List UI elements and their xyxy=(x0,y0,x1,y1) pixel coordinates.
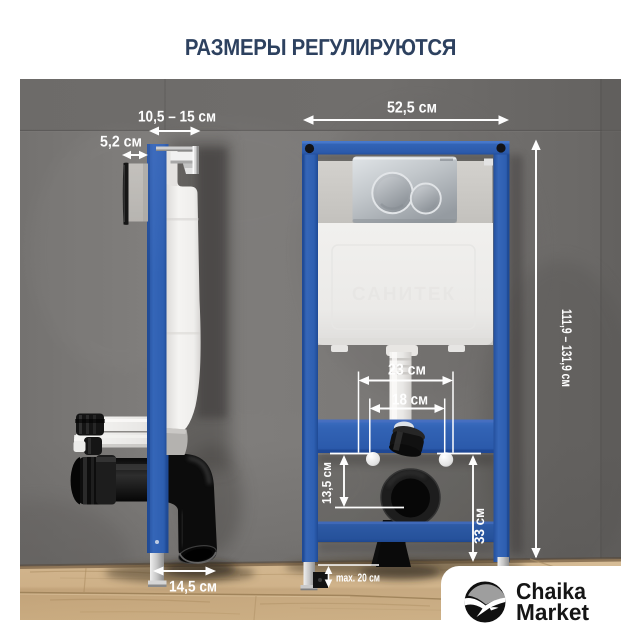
svg-text:52,5 см: 52,5 см xyxy=(387,100,437,117)
svg-text:10,5 – 15 см: 10,5 – 15 см xyxy=(138,109,216,126)
svg-text:РАЗМЕРЫ РЕГУЛИРУЮТСЯ: РАЗМЕРЫ РЕГУЛИРУЮТСЯ xyxy=(185,34,456,60)
svg-text:18 см: 18 см xyxy=(392,392,428,409)
svg-text:5,2 см: 5,2 см xyxy=(100,134,142,151)
svg-text:23 см: 23 см xyxy=(388,362,426,379)
svg-text:111,9 – 131,9 см: 111,9 – 131,9 см xyxy=(559,309,575,387)
svg-text:13,5 см: 13,5 см xyxy=(319,462,334,504)
svg-text:Market: Market xyxy=(516,599,589,625)
svg-text:14,5 см: 14,5 см xyxy=(169,579,217,596)
svg-text:max. 20 см: max. 20 см xyxy=(336,573,380,585)
svg-text:САНИТЕК: САНИТЕК xyxy=(352,284,456,305)
